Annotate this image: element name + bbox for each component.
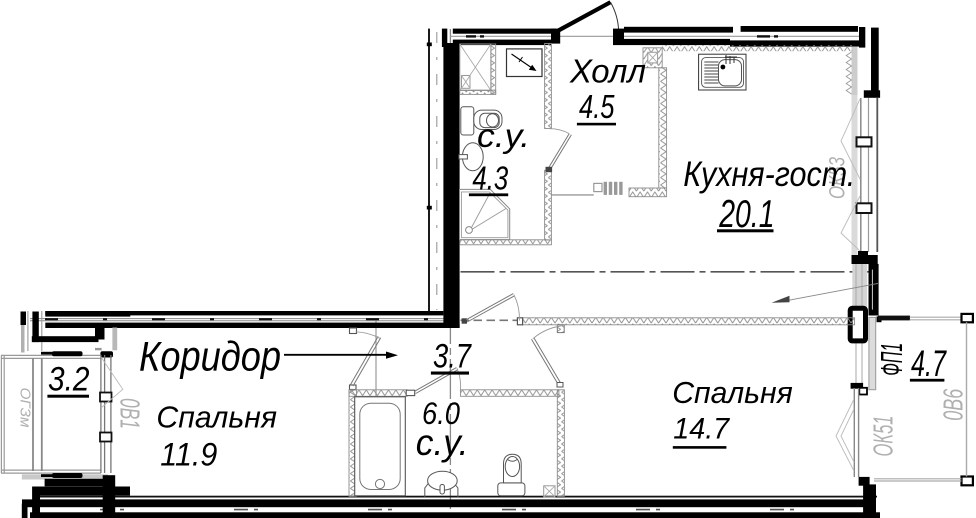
svg-text:3.7: 3.7 <box>433 337 472 375</box>
svg-text:0В6: 0В6 <box>937 388 968 420</box>
svg-text:0В1: 0В1 <box>115 398 146 429</box>
svg-text:с.у.: с.у. <box>477 117 530 154</box>
svg-text:ОК51: ОК51 <box>867 416 898 457</box>
svg-text:4.7: 4.7 <box>911 343 947 384</box>
svg-text:ФП1: ФП1 <box>874 343 909 376</box>
svg-text:ОГЗм: ОГЗм <box>16 388 32 428</box>
svg-text:Спальня: Спальня <box>672 375 793 410</box>
svg-text:4.5: 4.5 <box>579 88 615 125</box>
svg-text:Холл: Холл <box>569 53 646 90</box>
svg-text:с.у.: с.у. <box>416 422 469 463</box>
svg-text:4.3: 4.3 <box>472 160 508 197</box>
svg-text:3.2: 3.2 <box>48 361 90 399</box>
svg-text:Спальня: Спальня <box>156 400 277 435</box>
svg-text:11.9: 11.9 <box>160 436 217 472</box>
svg-text:Коридор: Коридор <box>139 333 281 380</box>
svg-text:14.7: 14.7 <box>673 413 731 446</box>
svg-text:Кухня-гост.: Кухня-гост. <box>683 155 855 194</box>
